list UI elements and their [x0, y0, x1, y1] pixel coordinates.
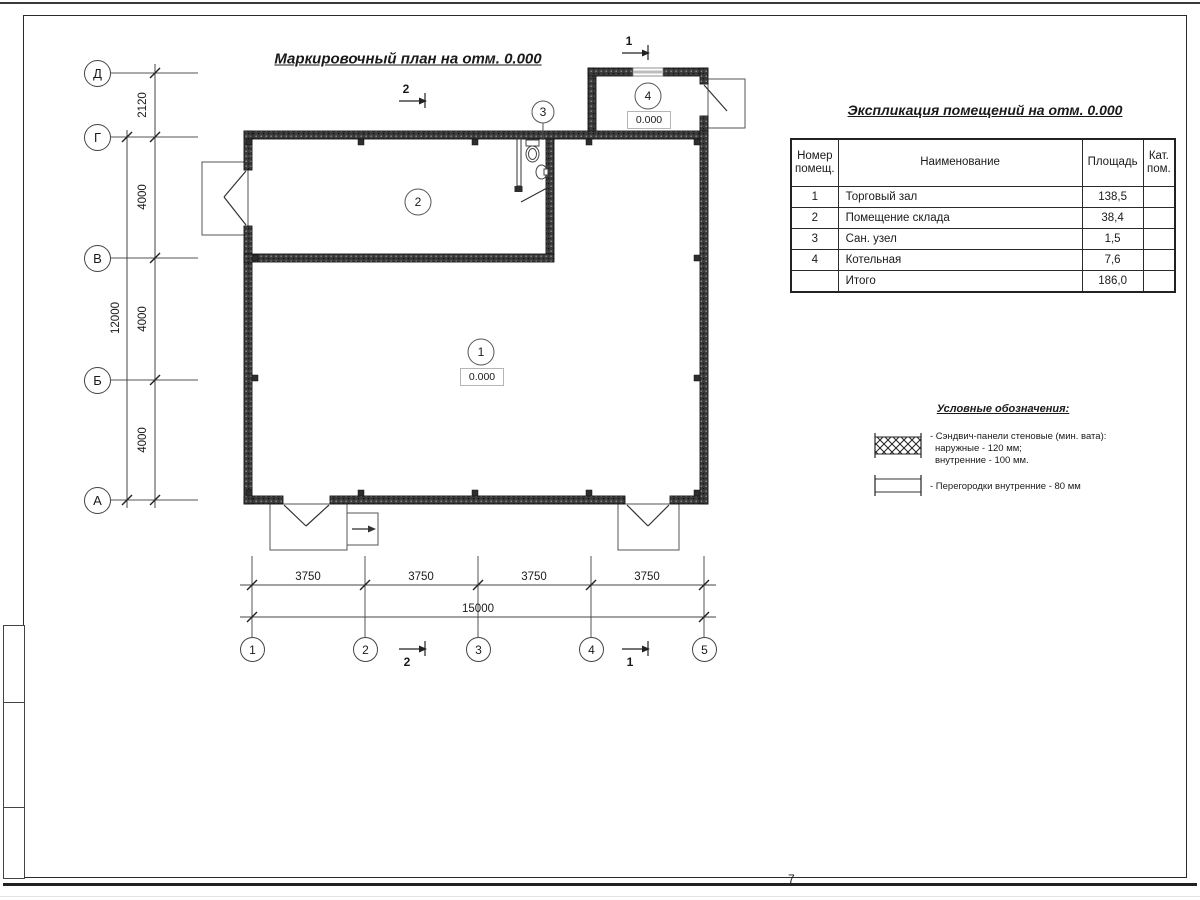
cell-name: Помещение склада: [838, 208, 1082, 229]
room-number-1: 1: [478, 345, 485, 359]
partition-symbol-icon: [875, 479, 921, 492]
col-header-name: Наименование: [838, 139, 1082, 187]
legend-item-text: внутренние - 100 мм.: [935, 455, 1029, 467]
dim-label: 3750: [295, 571, 321, 583]
cell-area: 38,4: [1082, 208, 1143, 229]
axis-grid-lines: [110, 73, 704, 637]
room-number-3: 3: [540, 105, 547, 119]
axis-bubble-5: 5: [692, 637, 717, 662]
legend-item-text: наружные - 120 мм;: [935, 443, 1022, 455]
axis-bubble-4: 4: [579, 637, 604, 662]
axis-bubble-v: В: [84, 245, 111, 272]
legend-item-text: - Сэндвич-панели стеновые (мин. вата):: [930, 431, 1106, 443]
section-mark-label: 2: [404, 655, 411, 669]
wall-pilasters: [246, 139, 700, 496]
cell-area: 186,0: [1082, 271, 1143, 293]
cell-name: Сан. узел: [838, 229, 1082, 250]
cell-number: 1: [791, 187, 838, 208]
table-row-total: Итого 186,0: [791, 271, 1175, 293]
porch-outlines: [202, 79, 745, 550]
elevation-mark: 0.000: [460, 368, 504, 386]
section-mark-label: 1: [626, 34, 633, 48]
axis-bubble-g: Г: [84, 124, 111, 151]
cell-number: 4: [791, 250, 838, 271]
dimension-lines: [122, 64, 716, 622]
col-header-number: Номер помещ.: [791, 139, 838, 187]
elevation-mark: 0.000: [627, 111, 671, 129]
axis-label: В: [93, 251, 102, 266]
legend-title: Условные обозначения:: [937, 403, 1070, 415]
axis-bubble-b: Б: [84, 367, 111, 394]
table-title: Экспликация помещений на отм. 0.000: [848, 102, 1123, 118]
dim-label-total: 12000: [110, 302, 122, 334]
axis-label: Д: [93, 66, 102, 81]
cell-name: Котельная: [838, 250, 1082, 271]
plan-title: Маркировочный план на отм. 0.000: [274, 51, 541, 68]
dim-label: 3750: [634, 571, 660, 583]
table-header-row: Номер помещ. Наименование Площадь Кат. п…: [791, 139, 1175, 187]
axis-label: А: [93, 493, 102, 508]
dim-label: 3750: [408, 571, 434, 583]
cell-cat: [1143, 271, 1175, 293]
axis-label: 1: [249, 643, 256, 657]
elevation-value: 0.000: [469, 371, 495, 383]
toilet-icon: [526, 140, 539, 162]
dim-label: 3750: [521, 571, 547, 583]
room-schedule-table: Номер помещ. Наименование Площадь Кат. п…: [790, 138, 1176, 293]
axis-bubble-1: 1: [240, 637, 265, 662]
legend-symbols: [875, 433, 921, 496]
dim-label: 2120: [137, 92, 149, 118]
room-number-4: 4: [645, 89, 652, 103]
cell-number: [791, 271, 838, 293]
table-row: 2 Помещение склада 38,4: [791, 208, 1175, 229]
dim-label: 4000: [137, 306, 149, 332]
cell-name: Итого: [838, 271, 1082, 293]
cell-number: 2: [791, 208, 838, 229]
entrance-arrow-icon: [352, 526, 376, 533]
room-number-circles: [405, 83, 661, 365]
sandwich-panel-hatch-icon: [875, 437, 921, 454]
window-icon: [633, 68, 663, 76]
cell-cat: [1143, 250, 1175, 271]
cell-area: 1,5: [1082, 229, 1143, 250]
wc-partition: [515, 139, 523, 192]
axis-label: 3: [475, 643, 482, 657]
table-row: 1 Торговый зал 138,5: [791, 187, 1175, 208]
exterior-walls: [244, 68, 708, 504]
axis-label: Б: [93, 373, 102, 388]
axis-label: 2: [362, 643, 369, 657]
cell-cat: [1143, 208, 1175, 229]
axis-label: 4: [588, 643, 595, 657]
col-header-area: Площадь: [1082, 139, 1143, 187]
dim-label: 4000: [137, 184, 149, 210]
axis-label: Г: [94, 130, 101, 145]
section-mark-label: 2: [403, 82, 410, 96]
cell-area: 138,5: [1082, 187, 1143, 208]
door-swings: [224, 85, 727, 526]
cell-cat: [1143, 229, 1175, 250]
dim-label-total: 15000: [462, 603, 494, 615]
axis-bubble-d: Д: [84, 60, 111, 87]
table-row: 4 Котельная 7,6: [791, 250, 1175, 271]
cell-cat: [1143, 187, 1175, 208]
cell-number: 3: [791, 229, 838, 250]
axis-bubble-a: А: [84, 487, 111, 514]
room-number-2: 2: [415, 195, 422, 209]
cell-area: 7,6: [1082, 250, 1143, 271]
cell-name: Торговый зал: [838, 187, 1082, 208]
axis-bubble-2: 2: [353, 637, 378, 662]
axis-bubble-3: 3: [466, 637, 491, 662]
col-header-cat: Кат. пом.: [1143, 139, 1175, 187]
legend-item-text: - Перегородки внутренние - 80 мм: [930, 481, 1081, 493]
section-mark-label: 1: [627, 655, 634, 669]
axis-label: 5: [701, 643, 708, 657]
elevation-value: 0.000: [636, 114, 662, 126]
dim-label: 4000: [137, 427, 149, 453]
table-row: 3 Сан. узел 1,5: [791, 229, 1175, 250]
